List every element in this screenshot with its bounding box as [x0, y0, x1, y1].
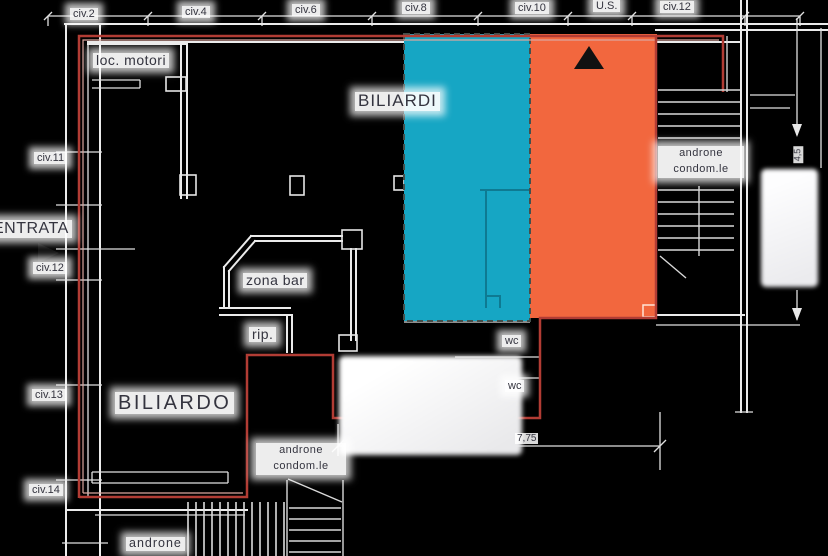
label-civ8: civ.8 — [402, 2, 430, 14]
label-dim-width: 7,75 — [515, 433, 538, 444]
label-wc-lower: wc — [505, 380, 524, 392]
label-dim-height: 4,5 — [793, 147, 803, 164]
bottom-stairwell — [287, 479, 343, 556]
label-biliardo: BILIARDO — [115, 392, 234, 414]
label-civ10: civ.10 — [515, 2, 549, 14]
label-wc-upper: wc — [502, 335, 521, 347]
label-zona-bar: zona bar — [243, 273, 307, 288]
label-civ12-left: civ.12 — [33, 262, 67, 274]
right-stairwell — [658, 90, 740, 278]
label-androne-bottom-area: androne condom.le — [256, 443, 346, 475]
label-civ12-top: civ.12 — [660, 1, 694, 13]
label-biliardi: BILIARDI — [355, 92, 440, 111]
label-entrata: ENTRATA — [0, 220, 72, 238]
teal-area — [404, 34, 530, 321]
label-civ13: civ.13 — [32, 389, 66, 401]
label-androne-bottom: androne — [126, 537, 185, 551]
teal-unit-fill — [404, 34, 530, 321]
label-androne-right: androne condom.le — [658, 146, 744, 178]
label-civ4: civ.4 — [182, 6, 210, 18]
entrance-triangle-icon — [38, 243, 59, 263]
floor-plan: civ.2 civ.4 civ.6 civ.8 civ.10 U.S. civ.… — [0, 0, 828, 556]
orange-area — [528, 34, 657, 318]
label-civ14: civ.14 — [29, 484, 63, 496]
label-rip: rip. — [249, 327, 276, 342]
zona-bar-walls — [220, 236, 356, 352]
label-civ6: civ.6 — [292, 4, 320, 16]
label-civ2: civ.2 — [70, 8, 98, 20]
floor-plan-linework — [0, 0, 828, 556]
label-us: U.S. — [593, 0, 620, 12]
erased-area-right — [761, 169, 818, 287]
erased-area-center — [339, 356, 522, 455]
orange-unit-fill — [528, 34, 657, 318]
label-civ11: civ.11 — [34, 152, 67, 164]
label-loc-motori: loc. motori — [93, 53, 169, 68]
